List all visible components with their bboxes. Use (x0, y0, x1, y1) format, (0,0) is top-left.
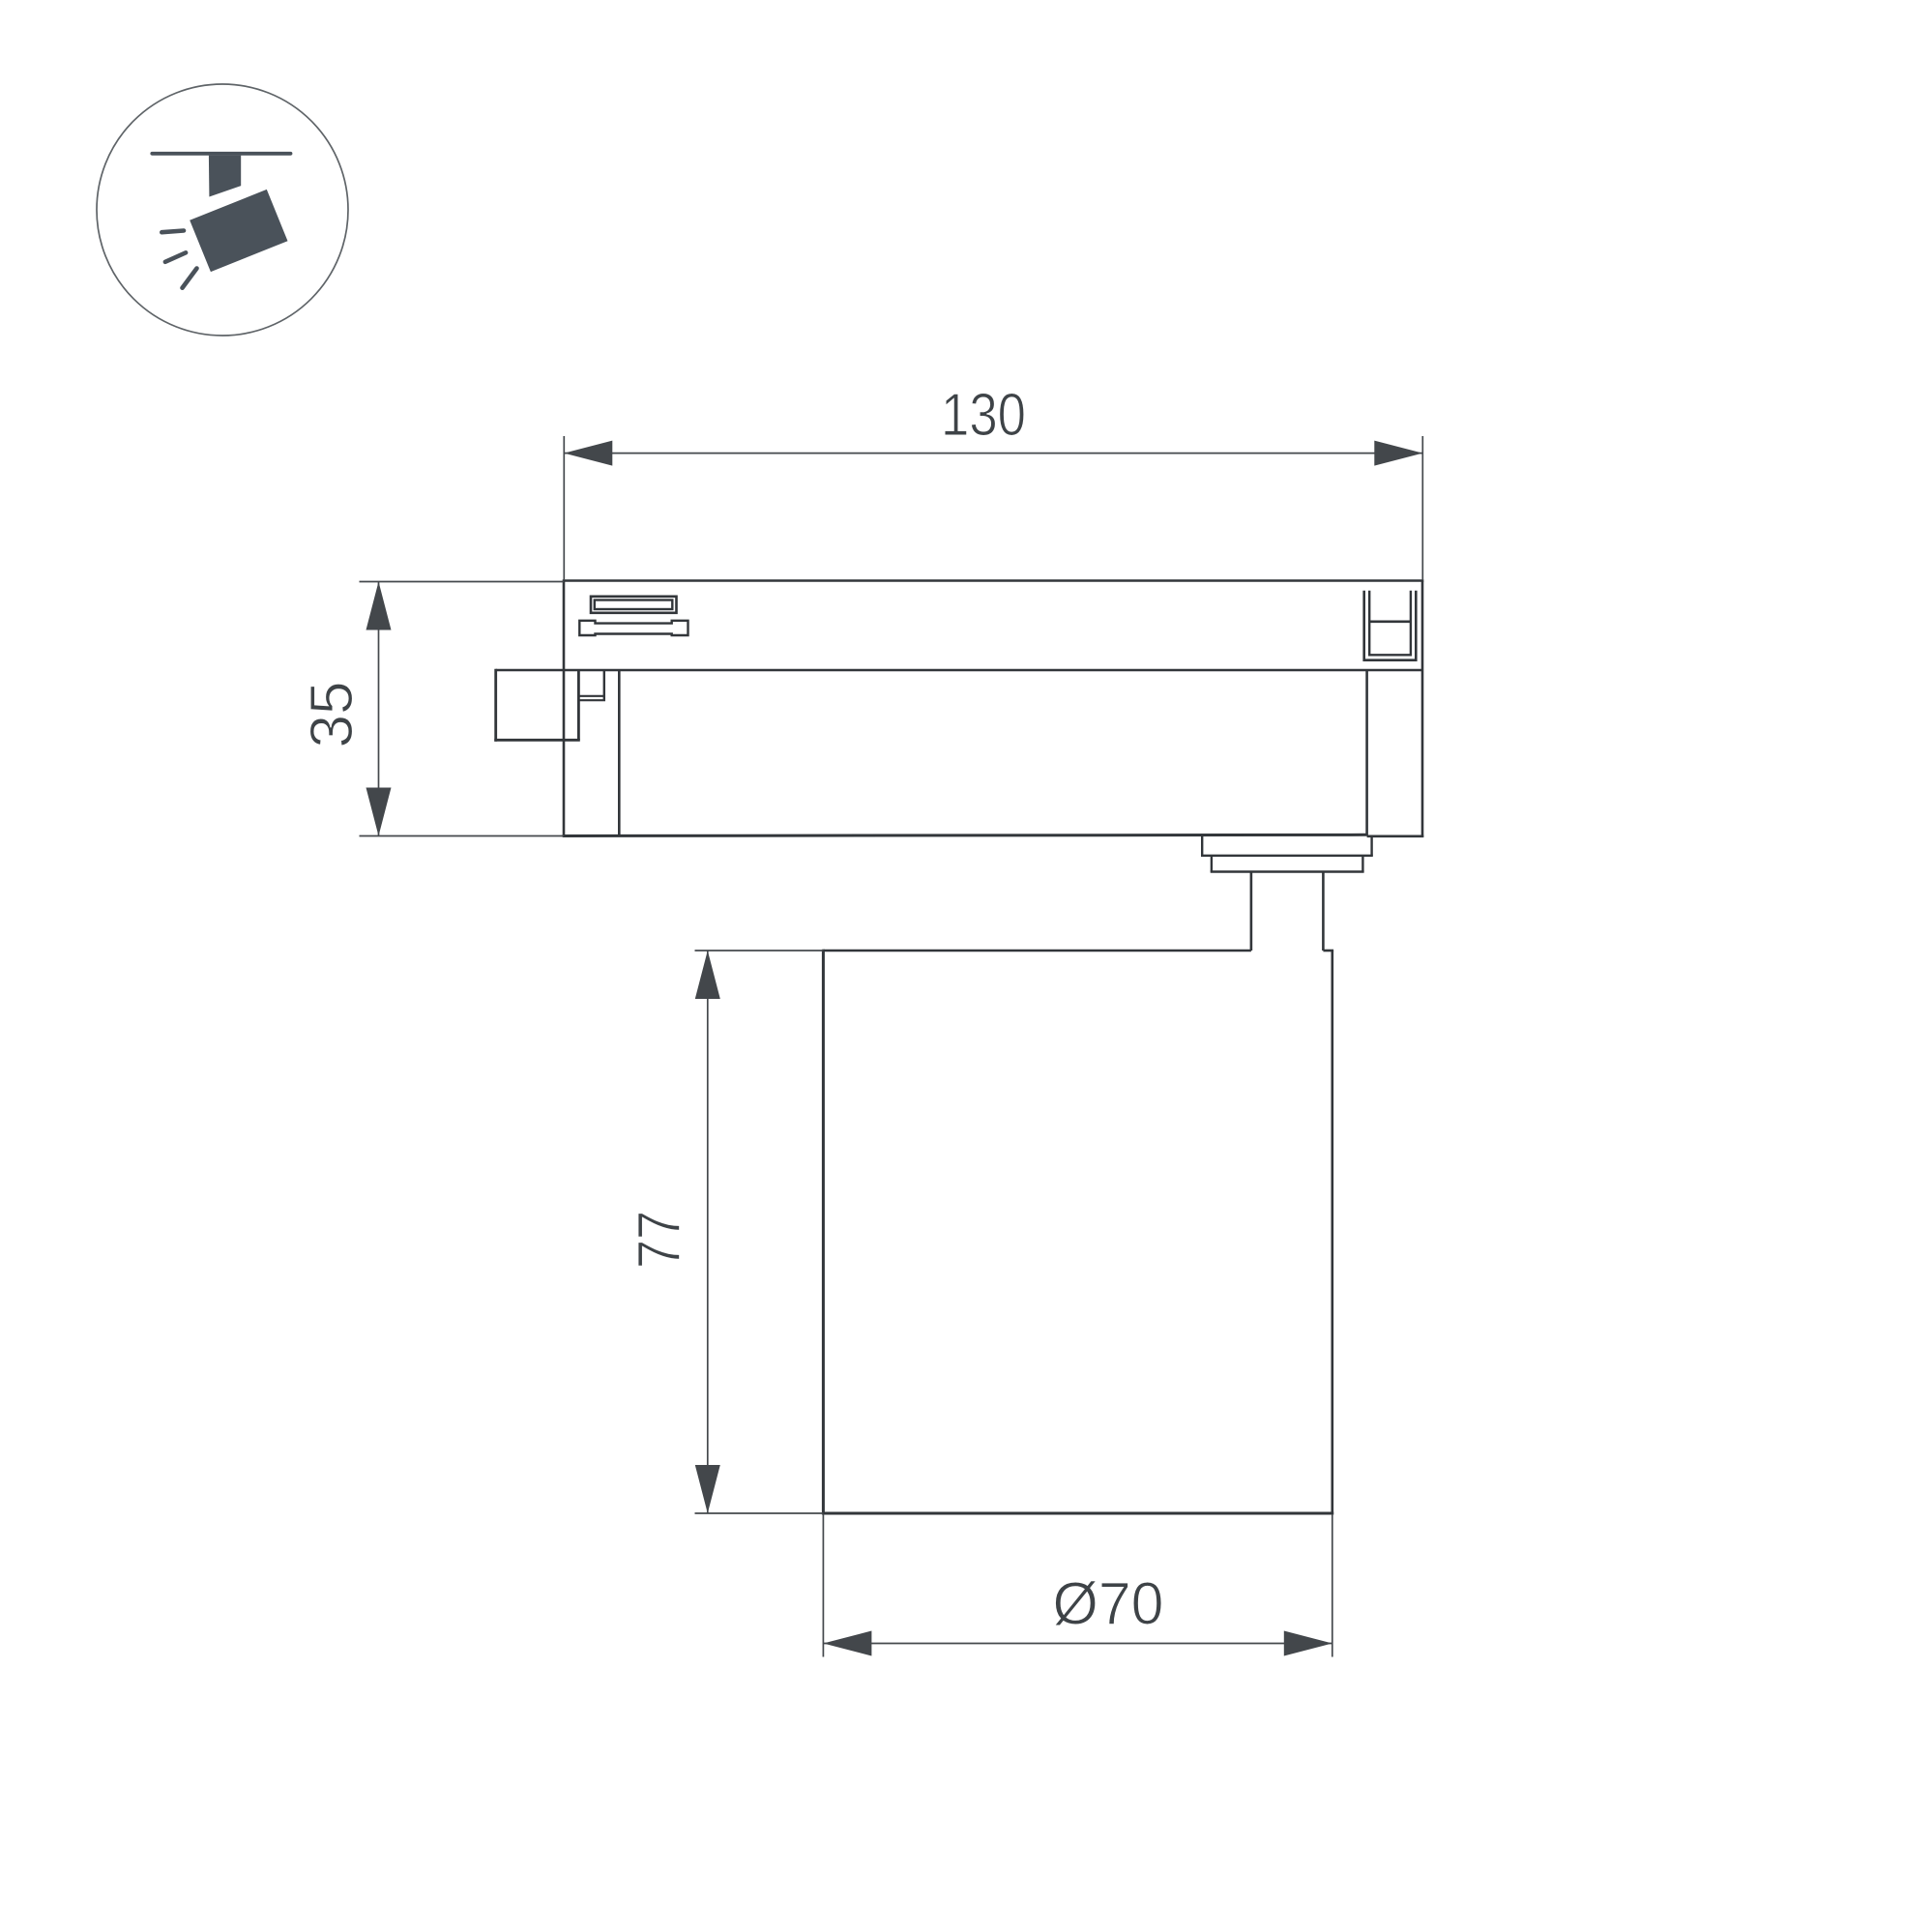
svg-text:35: 35 (299, 682, 366, 748)
svg-text:130: 130 (941, 382, 1026, 449)
svg-text:Ø70: Ø70 (1053, 1571, 1164, 1638)
svg-text:77: 77 (627, 1211, 693, 1269)
